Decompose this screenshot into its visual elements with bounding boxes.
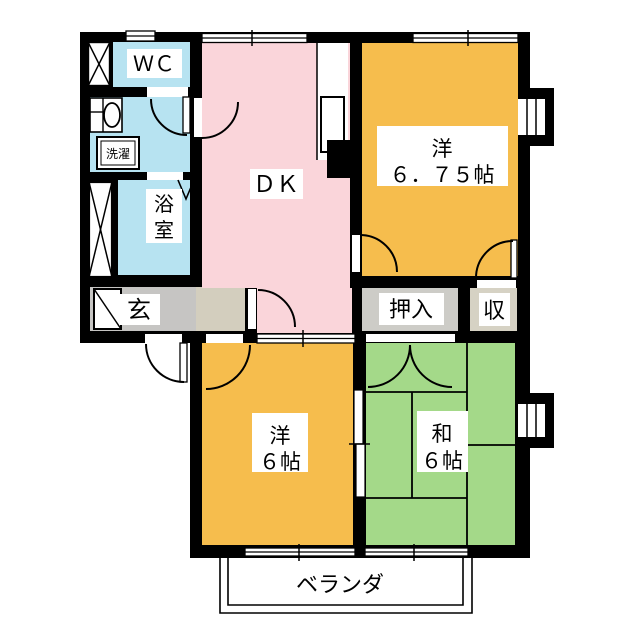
japanese6-size: ６帖	[421, 450, 463, 473]
pipe-space-lower-icon	[89, 182, 112, 277]
entrance-label: 玄	[127, 297, 151, 324]
storage-door-opening	[477, 280, 516, 288]
entrance-door-opening	[145, 334, 182, 343]
dk-western675-door-leaf	[352, 235, 360, 272]
kitchen-duct-block	[327, 140, 362, 178]
washbasin-icon	[90, 98, 122, 132]
shoe-cabinet-icon	[94, 289, 121, 329]
western675-name: 洋	[432, 138, 453, 161]
dk-label: ＤＫ	[253, 171, 299, 197]
wc-label: ＷＣ	[133, 53, 175, 76]
bath-label-1: 浴	[154, 193, 174, 216]
entrance-door-arc	[146, 344, 184, 382]
oshiire-door-opening	[366, 334, 455, 342]
veranda-label: ベランダ	[296, 572, 384, 597]
pipe-space-upper-icon	[88, 42, 110, 86]
storage-label: 収	[483, 298, 505, 323]
western675-size: ６．７５帖	[390, 164, 495, 187]
bay-window-lower	[518, 393, 554, 448]
storage-door-leaf	[511, 240, 517, 278]
room-dk-extension	[257, 288, 352, 333]
wc-door-opening	[147, 87, 188, 97]
bay-window-upper	[518, 88, 554, 146]
bath-door-opening	[147, 172, 183, 180]
floor-plan-canvas: ＷＣ 洗濯 浴 室 玄 ＤＫ 洋 ６．７５帖 押入 収 洋 ６帖 和 ６帖 ベラ…	[0, 0, 640, 640]
western6-size: ６帖	[259, 451, 301, 474]
hall-dk-door-leaf	[248, 289, 256, 329]
wc-door-leaf	[183, 97, 190, 133]
bath-label-2: 室	[154, 219, 174, 242]
oshiire-label: 押入	[389, 297, 433, 322]
western6-name: 洋	[270, 425, 291, 448]
washroom-dk-door-leaf	[194, 98, 202, 137]
japanese6-name: 和	[432, 423, 453, 446]
window-wc	[126, 31, 155, 41]
floor-plan: ＷＣ 洗濯 浴 室 玄 ＤＫ 洋 ６．７５帖 押入 収 洋 ６帖 和 ６帖 ベラ…	[0, 0, 640, 640]
entrance-hall-step	[196, 287, 245, 331]
western6-door-opening	[206, 334, 243, 343]
entrance-door-leaf	[180, 343, 187, 382]
laundry-label: 洗濯	[106, 147, 130, 161]
